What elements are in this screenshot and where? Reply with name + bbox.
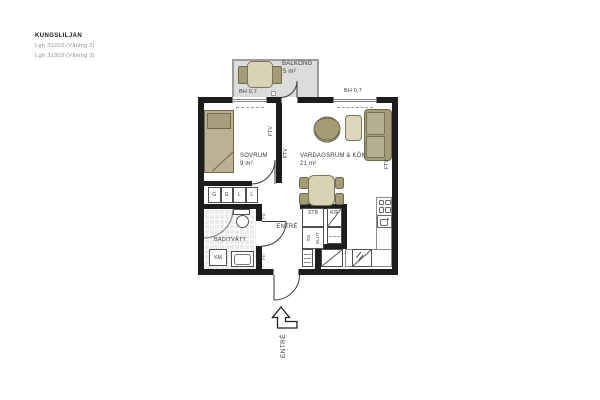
bedroom-area: 9 m² [240, 161, 253, 168]
sofa-cushion [366, 112, 385, 135]
wall-segment [299, 269, 398, 275]
balcony-table [247, 61, 273, 88]
living-window [333, 97, 377, 103]
dining-chair [335, 177, 345, 189]
entrance-door-arc [274, 275, 300, 300]
bedroom-name: SOVRUM [240, 153, 268, 160]
entry-direction-arrow-icon [273, 307, 298, 328]
bedroom-radiator [236, 107, 264, 108]
sill-height-left: BH 0,7 [233, 89, 263, 95]
floor-plan: KUNGSLILJAN Lgh 31203 (Våning 2) Lgh 313… [0, 0, 600, 400]
bed-pillow [207, 113, 231, 129]
stove-hob [377, 198, 392, 214]
closet-l2: L [246, 187, 259, 203]
wall-wardrobe [204, 181, 252, 186]
closet-label: G [212, 192, 216, 198]
hall-name: ENTRÉ [273, 224, 301, 231]
entry-direction-label: ENTRÉ [279, 326, 287, 366]
armchair [314, 117, 340, 142]
elit-label: EL/IT [313, 218, 321, 258]
bath-sink-basin [234, 254, 251, 265]
dining-table [308, 175, 335, 206]
closet-label: G [225, 192, 229, 198]
bedroom-window [232, 97, 267, 103]
living-area: 21 m² [300, 161, 316, 168]
toilet-bowl [236, 215, 249, 228]
kitchen-closet [321, 249, 343, 267]
ftv-mark-living: FTV [282, 133, 290, 173]
apartment-id-1: Lgh 31203 (Våning 2) [35, 43, 95, 50]
washing-machine-label: KM [214, 255, 222, 261]
ftv-mark-kitchen: FTV [383, 144, 391, 184]
ftv-mark-bedroom: FTV [267, 111, 275, 151]
stb-label: STB [302, 210, 324, 216]
dishwasher [352, 249, 372, 267]
closet-label: L [238, 192, 241, 198]
wall-right [392, 97, 398, 275]
wall-kf-right [342, 204, 347, 249]
closet-label: L [250, 192, 253, 198]
closet-l1: L [233, 187, 246, 203]
closet-g1: G [208, 187, 221, 203]
entrance-door-opening [273, 269, 299, 275]
door-mark-upper: FD [259, 196, 267, 236]
washing-machine: KM [209, 249, 227, 266]
balcony-threshold [271, 91, 276, 96]
fridge-freezer-label: K/F [327, 210, 342, 216]
kitchen-sink [377, 215, 392, 228]
apartment-id-2: Lgh 31303 (Våning 3) [35, 53, 95, 60]
wall-segment [298, 97, 333, 103]
bathroom-name: BAD/TVÄTT [204, 237, 256, 244]
kitchen-cabinet [327, 227, 342, 244]
living-name: VARDAGSRUM & KÖK [300, 153, 366, 160]
dining-chair [335, 193, 345, 205]
bedroom-door-arc [252, 160, 276, 184]
balcony-area: 5 m² [283, 69, 296, 76]
balcony-door-opening [281, 97, 298, 103]
balcony-name: BALKONG [282, 61, 312, 68]
plan-title: KUNGSLILJAN [35, 33, 82, 40]
sg-label: SG [304, 218, 312, 258]
door-mark-lower: FD [259, 237, 267, 277]
living-radiator [337, 107, 373, 108]
ottoman [345, 115, 362, 141]
sill-height-right: BH 0,7 [338, 88, 368, 94]
closet-g2: G [221, 187, 234, 203]
balcony-chair-right [272, 66, 282, 84]
